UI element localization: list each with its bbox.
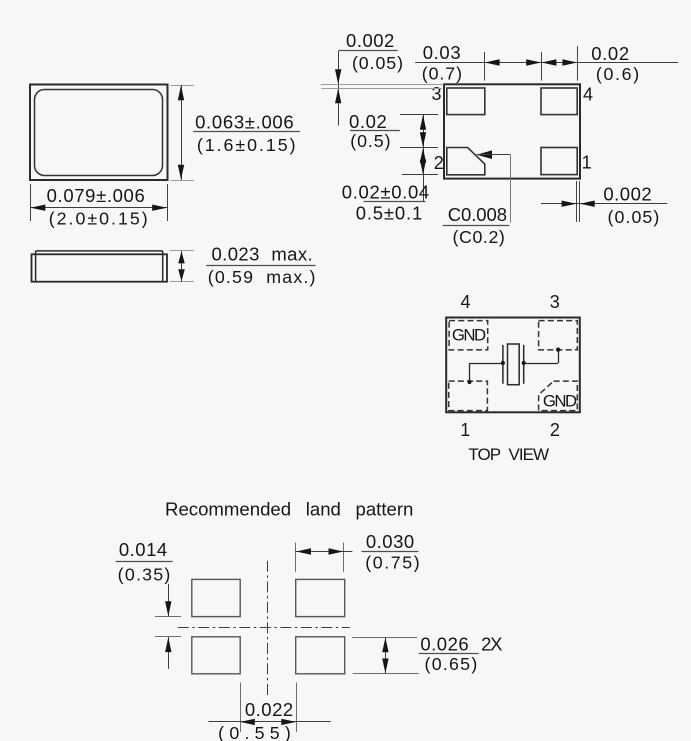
svg-text:(0.55): (0.55) <box>218 723 296 741</box>
svg-text:3: 3 <box>431 84 441 104</box>
svg-text:(0.05): (0.05) <box>352 53 404 73</box>
svg-text:0.02: 0.02 <box>349 111 387 132</box>
svg-text:(2.0±0.15): (2.0±0.15) <box>49 209 150 229</box>
svg-text:1: 1 <box>460 420 470 440</box>
svg-text:C0.008: C0.008 <box>448 204 507 225</box>
svg-text:(0.5): (0.5) <box>350 131 391 151</box>
svg-text:1: 1 <box>582 153 592 173</box>
svg-text:0.014: 0.014 <box>119 539 168 560</box>
svg-text:0.022: 0.022 <box>245 699 294 720</box>
svg-text:0.02±0.04: 0.02±0.04 <box>342 182 430 203</box>
svg-text:0.026: 0.026 <box>420 633 469 654</box>
svg-text:0.03: 0.03 <box>423 42 461 63</box>
svg-text:2: 2 <box>434 153 444 173</box>
svg-text:(0.59 max.): (0.59 max.) <box>208 267 317 287</box>
svg-text:0.002: 0.002 <box>346 30 395 51</box>
svg-text:TOP VIEW: TOP VIEW <box>468 445 549 464</box>
svg-text:0.02: 0.02 <box>591 43 629 64</box>
svg-text:(0.05): (0.05) <box>607 207 660 227</box>
svg-text:4: 4 <box>583 85 593 105</box>
svg-text:0.5±0.1: 0.5±0.1 <box>356 203 423 224</box>
svg-text:2X: 2X <box>481 633 502 654</box>
svg-text:(1.6±0.15): (1.6±0.15) <box>197 135 298 155</box>
svg-text:0.079±.006: 0.079±.006 <box>47 185 146 206</box>
svg-text:0.063±.006: 0.063±.006 <box>195 111 294 132</box>
svg-text:0.030: 0.030 <box>366 531 415 552</box>
svg-text:0.002: 0.002 <box>603 184 652 205</box>
svg-text:Recommended land pattern: Recommended land pattern <box>165 499 413 520</box>
svg-text:(0.7): (0.7) <box>422 64 463 84</box>
svg-text:3: 3 <box>550 292 560 312</box>
svg-text:4: 4 <box>460 292 470 312</box>
svg-text:GND: GND <box>543 391 577 410</box>
svg-text:(0.75): (0.75) <box>365 553 421 573</box>
svg-text:(C0.2): (C0.2) <box>453 227 506 247</box>
svg-text:GND: GND <box>452 326 486 345</box>
svg-text:0.023 max.: 0.023 max. <box>211 244 313 265</box>
svg-text:(0.35): (0.35) <box>118 565 172 585</box>
svg-text:(0.65): (0.65) <box>425 654 479 674</box>
svg-text:2: 2 <box>550 420 560 440</box>
svg-text:(0.6): (0.6) <box>596 64 641 84</box>
